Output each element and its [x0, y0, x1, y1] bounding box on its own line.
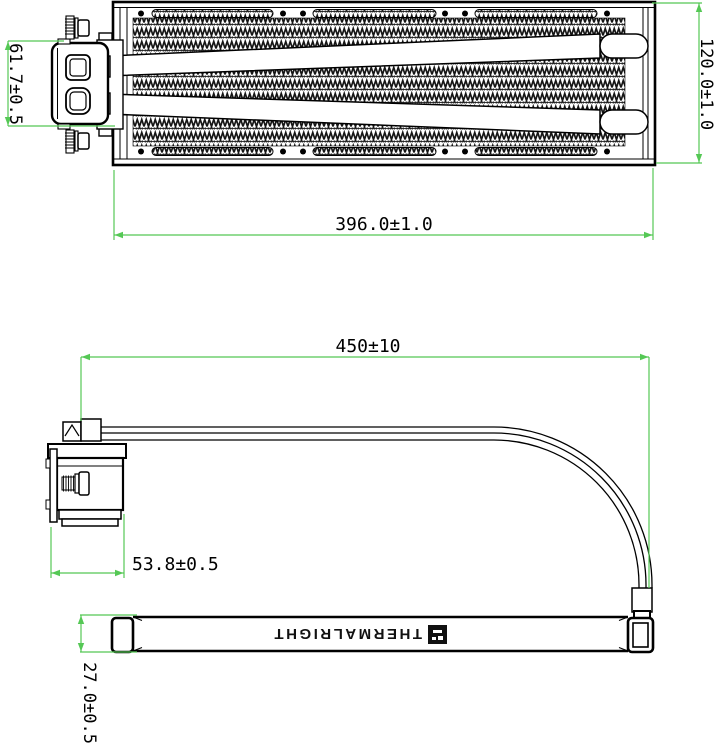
- dim-radiator-width: 120.0±1.0: [652, 3, 716, 163]
- dim-label-radiator-thickness: 27.0±0.5: [79, 662, 99, 744]
- tube-elbow-inner: [70, 92, 86, 110]
- dim-tube-length: 450±10: [81, 336, 649, 588]
- technical-drawing: 61.7±0.5 120.0±1.0 396.0±1.0: [0, 0, 719, 750]
- side-view: THERMALRIGHT 450±10 53.8±0.5: [46, 336, 653, 744]
- tube-elbow-fitting-side: [63, 419, 101, 441]
- brand-print: THERMALRIGHT: [272, 625, 447, 644]
- mounting-screw-bottom: [58, 124, 89, 153]
- pump-top-view: [52, 33, 123, 136]
- tube-fitting-radiator: [632, 588, 652, 612]
- radiator-side-view: THERMALRIGHT: [112, 588, 653, 652]
- pump-side-plate: [50, 449, 57, 522]
- radiator-rail-slots-bottom: [152, 148, 597, 156]
- radiator-end-cap-left: [112, 618, 133, 652]
- pump-cold-plate-base: [62, 519, 118, 526]
- pump-top-plate: [48, 444, 126, 458]
- radiator-rail-slots-top: [152, 10, 597, 18]
- top-view: 61.7±0.5 120.0±1.0 396.0±1.0: [5, 2, 716, 240]
- pump-bottom-step: [59, 510, 121, 519]
- radiator-top-view: [113, 2, 655, 165]
- brand-label: THERMALRIGHT: [272, 625, 422, 642]
- thermalright-logo-icon: [428, 625, 447, 644]
- pump-side-view: [46, 444, 126, 526]
- dim-label-tube-length: 450±10: [335, 336, 400, 357]
- drawing-page: 61.7±0.5 120.0±1.0 396.0±1.0: [0, 0, 719, 750]
- dim-label-radiator-length: 396.0±1.0: [335, 214, 433, 235]
- bracket-clip: [46, 459, 50, 468]
- tube-elbow-inner: [70, 59, 86, 76]
- dim-radiator-length: 396.0±1.0: [114, 168, 653, 240]
- dim-label-radiator-width: 120.0±1.0: [696, 38, 716, 130]
- mounting-screw-top: [58, 16, 89, 44]
- dim-label-pump-height: 61.7±0.5: [5, 43, 25, 125]
- bracket-clip: [46, 500, 50, 509]
- dim-label-pump-depth: 53.8±0.5: [132, 554, 219, 575]
